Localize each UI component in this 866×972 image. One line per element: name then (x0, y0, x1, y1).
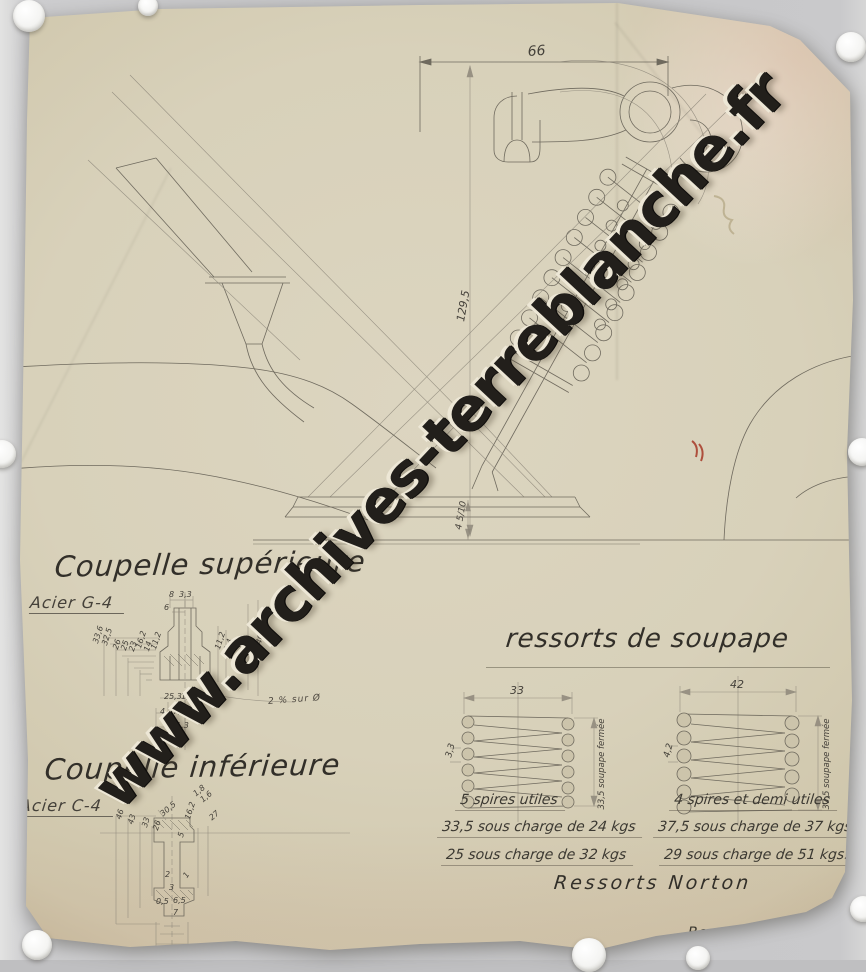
pin-bottom-left (22, 930, 52, 960)
intake-funnel (88, 158, 314, 422)
pin-top-left (13, 0, 45, 32)
dimension-base-label: 4 5/10 (454, 500, 469, 530)
pin-bottom-center (572, 938, 606, 972)
signature-block: Beaulieu: SEE. 16-1-34 (688, 922, 866, 967)
dimension-label: 7 (173, 909, 178, 917)
right-spring-note-3: 29 sous charge de 51 kgs. (659, 847, 858, 866)
ressorts-title: ressorts de soupape (504, 624, 790, 654)
dimension-129-label: 129,5 (454, 289, 472, 322)
dimension-label: 5 (177, 831, 186, 838)
dimension-label: 3,3 (179, 591, 192, 599)
dimension-label: 11,2 (150, 631, 163, 650)
dimension-label: 1 (182, 871, 191, 880)
dimension-label: 27 (208, 809, 221, 822)
left-spring-closed-label: 33,5 soupape fermée (596, 718, 607, 809)
ressorts-title-underline (486, 667, 830, 668)
left-spring-note-1: 5 spires utiles (455, 792, 567, 811)
ressorts-section: ressorts de soupape (428, 620, 866, 925)
dimension-label: 0,5 (156, 898, 169, 906)
photo-background: 66 129,5 (0, 0, 866, 960)
pin-top-right (836, 32, 866, 62)
dimension-label: 30,5 (159, 801, 178, 819)
dimension-label: 8 (169, 591, 174, 599)
ressorts-caption: Ressorts Norton (553, 872, 753, 894)
dimension-label: 6 (164, 604, 169, 612)
dimension-label: 6,5 (173, 897, 186, 905)
right-spring-note-1: 4 spires et demi utiles (669, 792, 839, 811)
red-pencil-mark (692, 441, 703, 461)
paper-sheet: 66 129,5 (0, 0, 866, 960)
left-spring-wire-label: 3,3 (444, 742, 457, 759)
left-spring-note-2: 33,5 sous charge de 24 kgs (437, 819, 644, 838)
paper-wrapper: 66 129,5 (0, 0, 866, 960)
right-spring-width-label: 42 (730, 678, 744, 691)
dimension-label: 16,2 (184, 801, 197, 820)
left-spring-note-3: 25 sous charge de 32 kgs (441, 847, 635, 866)
pin-bottom-center-2 (686, 946, 710, 970)
signature-text: Beaulieu: SEE. 16-1-34 (688, 925, 866, 941)
left-spring-width-label: 33 (510, 684, 524, 697)
dimension-66-label: 66 (527, 43, 546, 60)
dimension-label: 2 (165, 871, 170, 879)
dimension-label: 3 (169, 884, 174, 892)
right-spring-wire-label: 4,2 (662, 742, 675, 759)
right-spring-note-2: 37,5 sous charge de 37 kgs. (653, 819, 865, 838)
dimension-label: 26 (152, 819, 163, 831)
